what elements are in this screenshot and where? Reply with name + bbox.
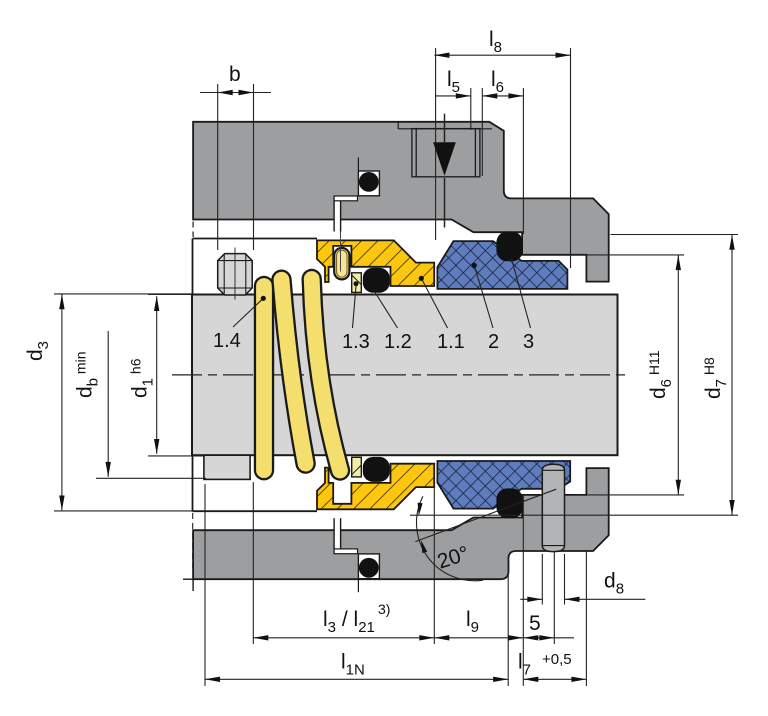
- svg-text:1.2: 1.2: [384, 331, 412, 353]
- svg-text:3): 3): [378, 601, 390, 617]
- svg-text:3: 3: [523, 331, 534, 353]
- svg-text:1.4: 1.4: [213, 330, 241, 352]
- svg-text:1.3: 1.3: [342, 331, 370, 353]
- svg-text:1.1: 1.1: [437, 331, 465, 353]
- svg-text:5: 5: [529, 612, 541, 635]
- svg-text:+0,5: +0,5: [542, 651, 572, 668]
- svg-text:b: b: [229, 63, 241, 86]
- svg-text:2: 2: [488, 331, 499, 353]
